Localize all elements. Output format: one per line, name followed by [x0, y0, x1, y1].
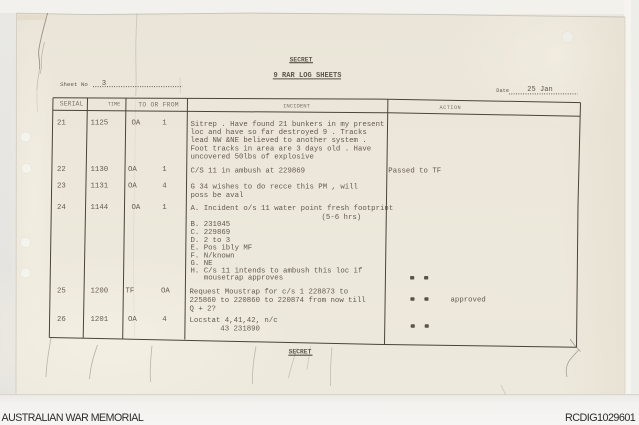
svg-text:1200: 1200	[91, 287, 109, 295]
svg-text:RCDIG1029601: RCDIG1029601	[565, 412, 636, 424]
svg-text:OA: OA	[128, 166, 137, 174]
svg-text:23: 23	[57, 182, 66, 190]
svg-text:OA: OA	[128, 316, 137, 324]
svg-text:25 Jan: 25 Jan	[527, 86, 553, 94]
svg-text:1: 1	[162, 120, 167, 128]
svg-text:Locstat 4,41,42, n/c: Locstat 4,41,42, n/c	[190, 317, 278, 325]
svg-text:1125: 1125	[91, 120, 109, 128]
svg-text:loc and have so far destroyed: loc and have so far destroyed 9 . Tracks	[191, 129, 367, 137]
svg-text:Sitrep . Have found 21 bunkers: Sitrep . Have found 21 bunkers in my pre…	[191, 121, 385, 129]
svg-text:21: 21	[57, 120, 66, 128]
svg-text:C/S 11 in ambush at 229869: C/S 11 in ambush at 229869	[191, 167, 306, 175]
svg-text:SECRET: SECRET	[289, 349, 312, 356]
svg-text:OA: OA	[132, 204, 141, 212]
svg-text:INCIDENT: INCIDENT	[283, 103, 311, 110]
svg-text:4: 4	[162, 182, 167, 190]
svg-text:ACTION: ACTION	[440, 105, 462, 111]
svg-text:SERIAL: SERIAL	[60, 100, 84, 107]
svg-text:Foot tracks in area are 3 days: Foot tracks in area are 3 days old . Hav…	[191, 146, 372, 154]
svg-text:225860 to 220860 to 220874 fro: 225860 to 220860 to 220874 from now till	[190, 297, 366, 305]
svg-text:26: 26	[57, 316, 66, 324]
svg-text:1: 1	[162, 166, 167, 174]
svg-text:A. Incident o/s 11 water point: A. Incident o/s 11 water point fresh foo…	[191, 205, 394, 213]
svg-text:OA: OA	[128, 182, 137, 190]
svg-text:Q + 2?: Q + 2?	[190, 306, 216, 314]
svg-text:AUSTRALIAN WAR MEMORIAL: AUSTRALIAN WAR MEMORIAL	[2, 412, 144, 424]
svg-text:43 231890: 43 231890	[220, 325, 260, 333]
svg-text:TIME: TIME	[108, 102, 121, 108]
svg-text:Date: Date	[496, 88, 509, 94]
svg-text:G 34 wishes to do recce this P: G 34 wishes to do recce this PM , will	[191, 183, 358, 191]
svg-text:Passed to TF: Passed to TF	[388, 168, 441, 176]
svg-text:1201: 1201	[91, 316, 109, 324]
svg-text:approved: approved	[451, 297, 486, 305]
svg-text:(5-6 hrs): (5-6 hrs)	[322, 214, 362, 222]
svg-text:TF: TF	[126, 287, 135, 295]
svg-text:OA: OA	[161, 287, 170, 295]
svg-text:24: 24	[57, 204, 66, 212]
svg-text:Request Moustrap for c/s 1 228: Request Moustrap for c/s 1 228873 to	[190, 289, 349, 297]
svg-text:1144: 1144	[91, 204, 109, 212]
svg-text:22: 22	[57, 166, 66, 174]
svg-text:1131: 1131	[91, 182, 109, 190]
svg-text:TO OR FROM: TO OR FROM	[138, 101, 179, 108]
svg-text:25: 25	[57, 287, 66, 295]
svg-text:mousetrap approves: mousetrap approves	[204, 275, 283, 283]
svg-text:poss be aval: poss be aval	[191, 192, 244, 200]
svg-text:uncovered 50lbs of explosive: uncovered 50lbs of explosive	[191, 153, 314, 161]
svg-text:1: 1	[162, 204, 167, 212]
svg-text:OA: OA	[132, 120, 141, 128]
svg-text:B. 231045: B. 231045	[191, 221, 231, 229]
svg-text:lead NW &NE believed to anothe: lead NW &NE believed to another system .	[191, 137, 367, 145]
svg-text:4: 4	[162, 316, 167, 324]
svg-text:Sheet No: Sheet No	[60, 81, 88, 88]
svg-text:1130: 1130	[91, 166, 109, 174]
svg-text:E. Pos ibly MF: E. Pos ibly MF	[191, 245, 253, 253]
